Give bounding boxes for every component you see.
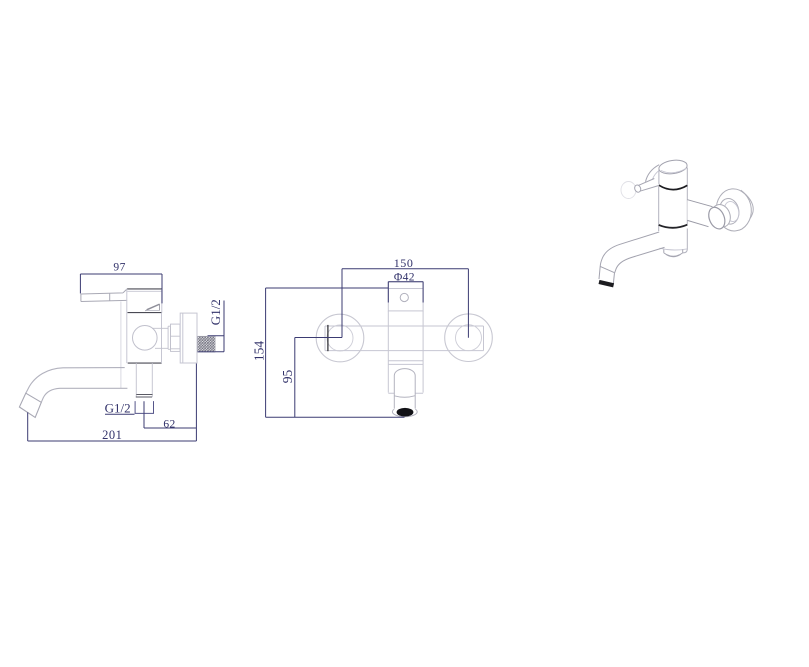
- svg-text:G1/2: G1/2: [105, 400, 131, 415]
- svg-text:150: 150: [394, 256, 414, 270]
- svg-text:62: 62: [163, 419, 175, 431]
- svg-text:154: 154: [252, 341, 267, 362]
- svg-text:G1/2: G1/2: [208, 299, 223, 325]
- svg-text:95: 95: [280, 370, 295, 384]
- svg-text:97: 97: [113, 261, 126, 273]
- svg-text:201: 201: [102, 428, 122, 442]
- svg-text:Φ42: Φ42: [394, 272, 415, 284]
